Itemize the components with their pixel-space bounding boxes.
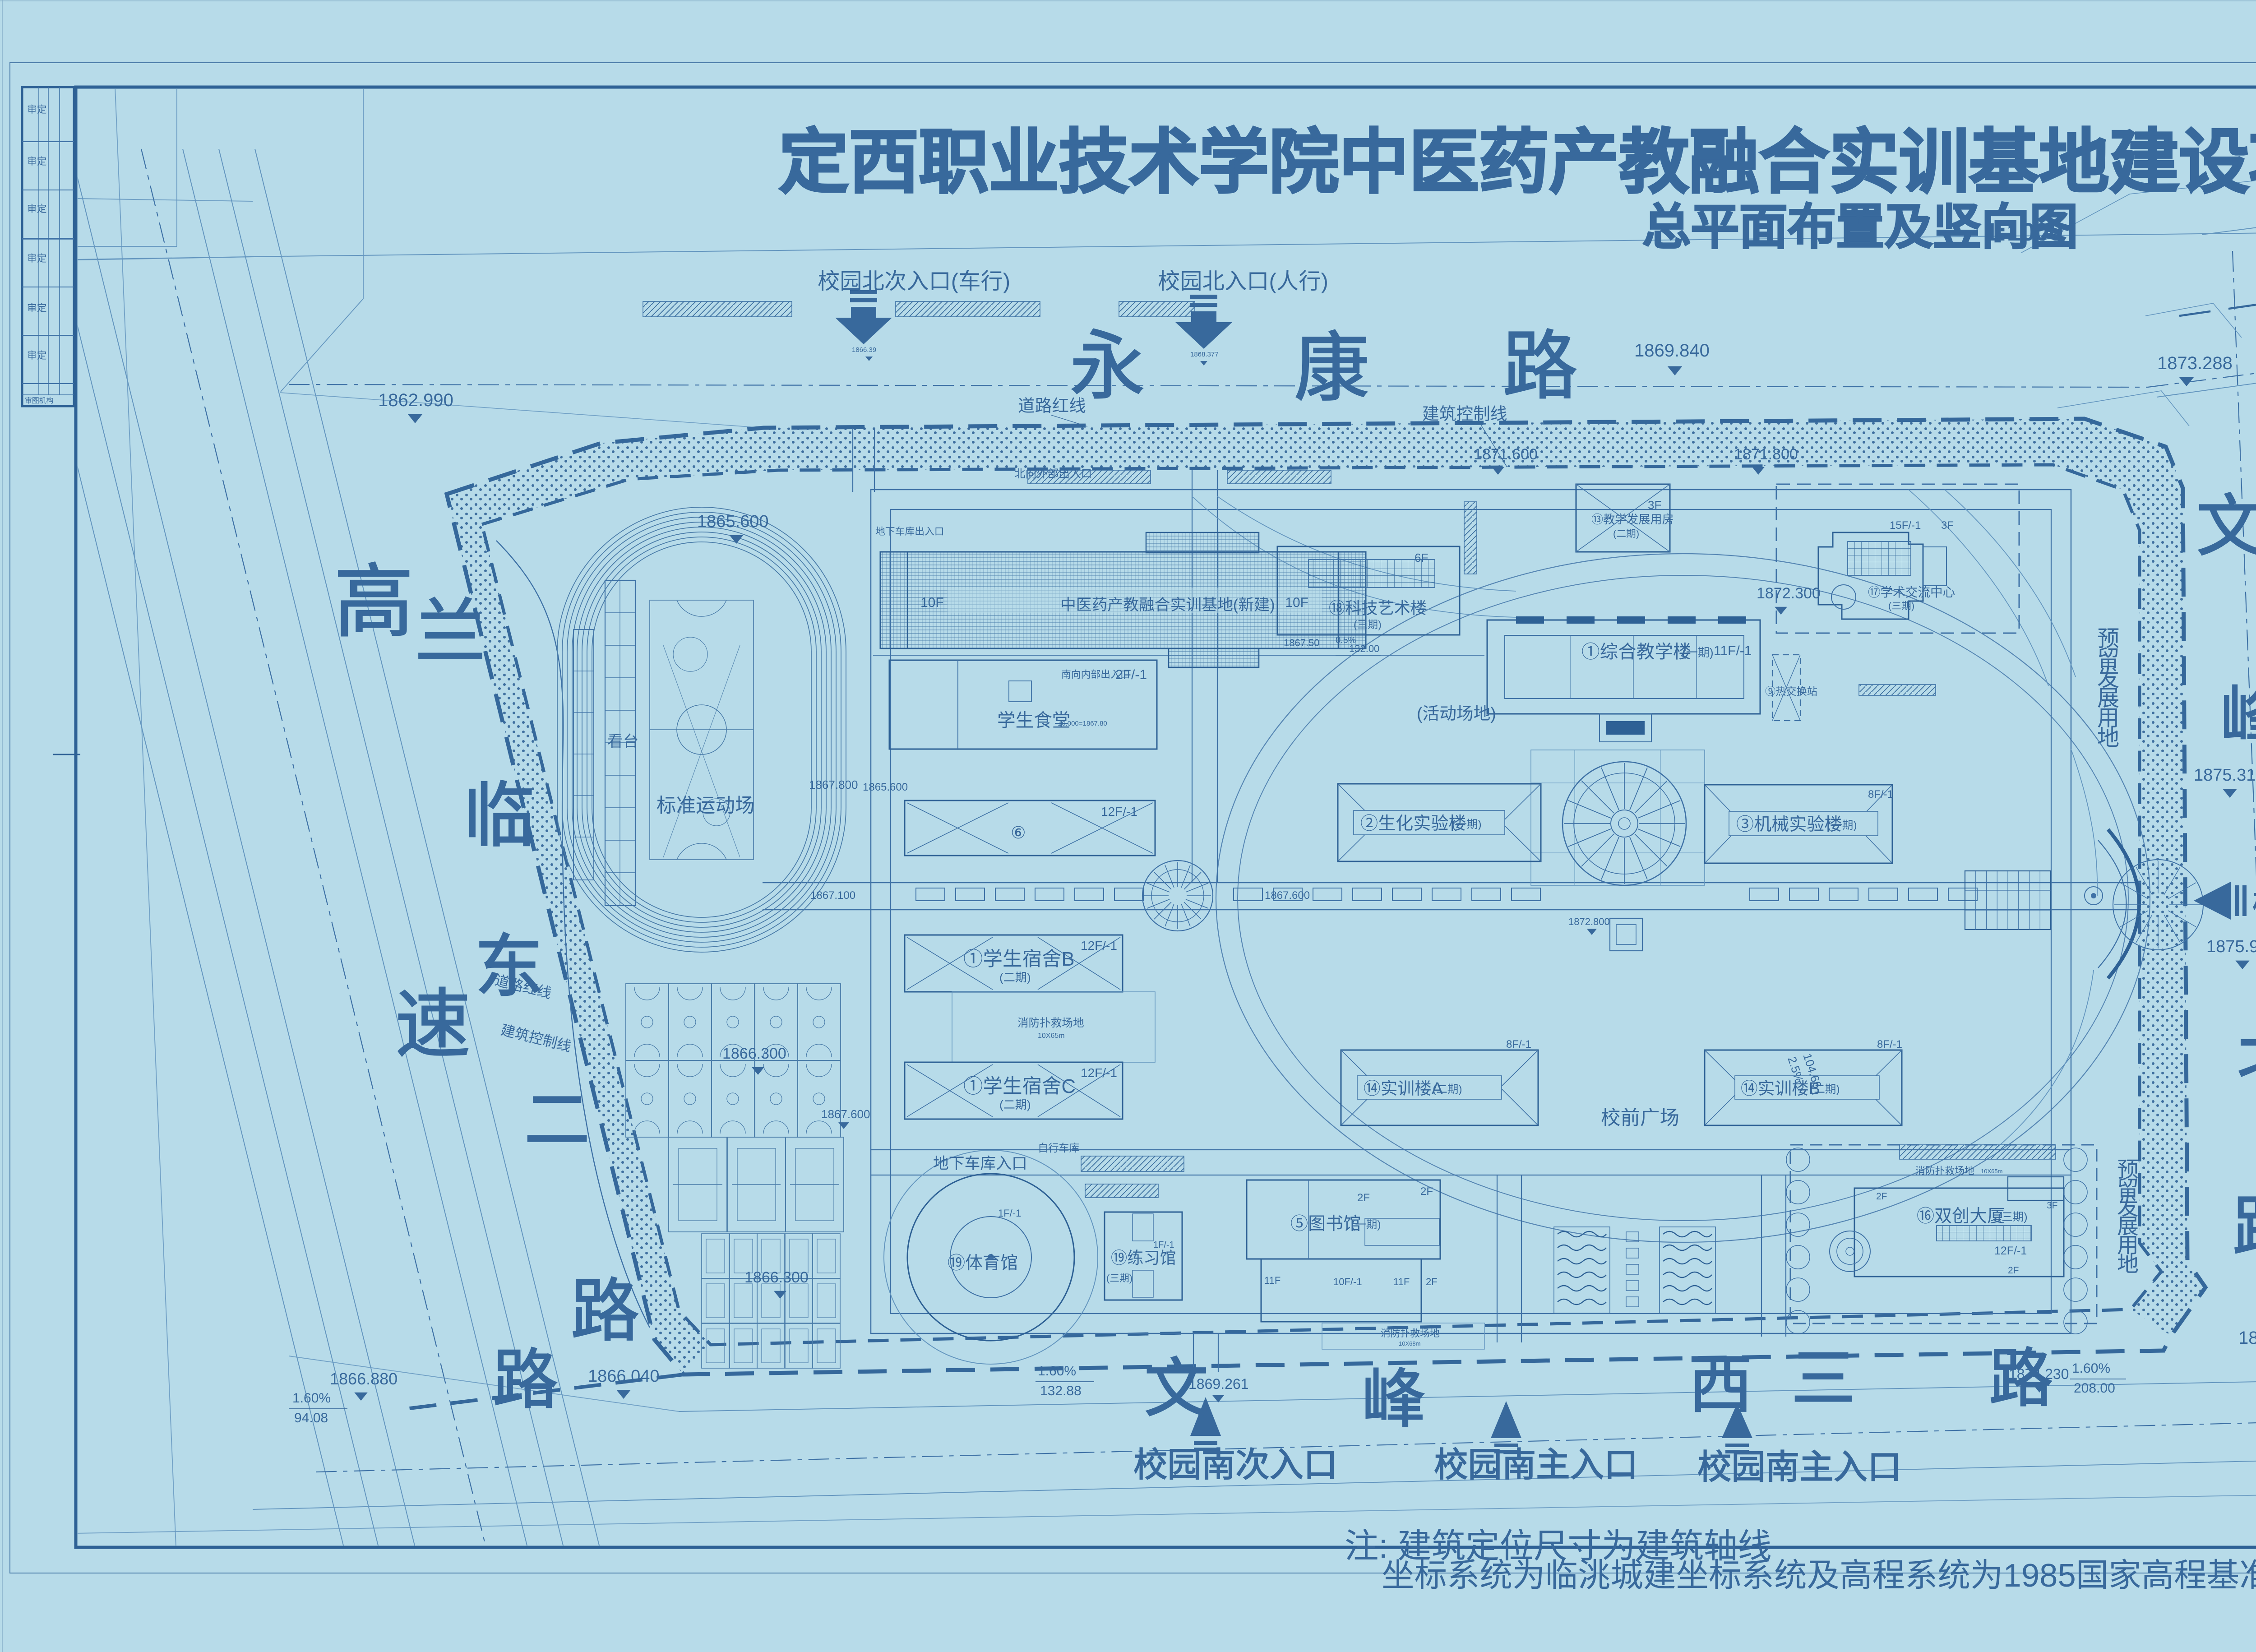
svg-text:兰: 兰 <box>415 593 486 672</box>
svg-text:1865.600: 1865.600 <box>863 781 908 793</box>
svg-text:②生化实验楼: ②生化实验楼 <box>1360 814 1466 833</box>
svg-text:道路红线: 道路红线 <box>1018 396 1086 415</box>
svg-text:速: 速 <box>395 983 471 1067</box>
svg-text:1867.800: 1867.800 <box>809 778 858 791</box>
svg-text:⑲练习馆: ⑲练习馆 <box>1111 1249 1176 1267</box>
svg-text:11F: 11F <box>1264 1275 1281 1286</box>
svg-text:1867.100: 1867.100 <box>810 889 855 902</box>
svg-text:6F: 6F <box>1415 551 1428 565</box>
svg-text:康: 康 <box>1294 326 1369 410</box>
svg-text:文: 文 <box>2196 489 2256 564</box>
svg-text:消防扑救场地: 消防扑救场地 <box>1915 1165 1974 1176</box>
svg-text:(三期): (三期) <box>1998 1211 2028 1223</box>
svg-text:校园北入口(人行): 校园北入口(人行) <box>1158 269 1328 294</box>
svg-text:2F: 2F <box>1426 1276 1438 1287</box>
svg-text:审定: 审定 <box>27 156 47 167</box>
svg-text:⑱科技艺术楼: ⑱科技艺术楼 <box>1329 599 1427 617</box>
svg-text:12F/-1: 12F/-1 <box>1081 939 1117 953</box>
svg-text:1868.377: 1868.377 <box>1190 351 1219 358</box>
svg-text:⑭实训楼A: ⑭实训楼A <box>1364 1079 1443 1098</box>
svg-text:94.08: 94.08 <box>294 1411 328 1425</box>
svg-text:15F/-1: 15F/-1 <box>1890 519 1921 532</box>
svg-text:(二期): (二期) <box>999 1098 1031 1111</box>
svg-text:高: 高 <box>334 558 414 647</box>
svg-text:①学生宿舍C: ①学生宿舍C <box>963 1076 1076 1097</box>
svg-text:⑥: ⑥ <box>1011 823 1026 842</box>
svg-text:校园南次入口: 校园南次入口 <box>1133 1446 1337 1484</box>
svg-text:1874.230: 1874.230 <box>2009 1366 2069 1382</box>
svg-text:1865.600: 1865.600 <box>697 512 769 531</box>
svg-text:(二期): (二期) <box>1613 528 1639 539</box>
svg-text:(三期): (三期) <box>1354 619 1382 630</box>
svg-text:2F: 2F <box>1876 1191 1887 1202</box>
svg-text:地下车库出入口: 地下车库出入口 <box>875 526 944 537</box>
svg-text:自行车库: 自行车库 <box>1038 1142 1080 1154</box>
svg-text:北向外部出入口: 北向外部出入口 <box>1014 467 1092 480</box>
svg-text:审定: 审定 <box>27 350 47 361</box>
svg-text:峰: 峰 <box>2220 680 2256 755</box>
svg-text:西: 西 <box>1688 1349 1752 1421</box>
svg-text:1.60%: 1.60% <box>1038 1364 1076 1379</box>
svg-text:1.60%: 1.60% <box>2072 1361 2110 1376</box>
svg-text:标准运动场: 标准运动场 <box>656 795 755 817</box>
svg-text:12F/-1: 12F/-1 <box>1994 1245 2027 1257</box>
svg-text:8F/-1: 8F/-1 <box>1868 788 1893 801</box>
svg-text:1872.300: 1872.300 <box>1757 585 1821 602</box>
svg-text:1F/-1: 1F/-1 <box>998 1208 1021 1219</box>
svg-text:1869.261: 1869.261 <box>1188 1376 1248 1392</box>
svg-text:校园东入口: 校园东入口 <box>2252 886 2256 919</box>
svg-text:1871.600: 1871.600 <box>1474 446 1538 463</box>
svg-text:峰: 峰 <box>1362 1364 1426 1435</box>
svg-text:①综合教学楼: ①综合教学楼 <box>1581 641 1691 662</box>
svg-text:11F: 11F <box>1393 1276 1410 1287</box>
svg-text:二: 二 <box>524 1083 590 1157</box>
svg-text:⑲体育馆: ⑲体育馆 <box>948 1254 1018 1273</box>
svg-text:地下车库入口: 地下车库入口 <box>933 1155 1027 1172</box>
svg-text:(活动场地): (活动场地) <box>1417 704 1496 723</box>
svg-text:⑬教学发展用房: ⑬教学发展用房 <box>1591 513 1674 526</box>
svg-text:3F: 3F <box>2047 1200 2058 1211</box>
svg-text:±0.000=1867.80: ±0.000=1867.80 <box>1058 720 1107 727</box>
svg-text:(三期): (三期) <box>1106 1273 1133 1284</box>
svg-text:10X65m: 10X65m <box>1981 1168 2002 1175</box>
svg-text:建筑控制线: 建筑控制线 <box>1422 404 1507 423</box>
svg-text:8F/-1: 8F/-1 <box>1877 1038 1902 1050</box>
svg-text:审定: 审定 <box>27 302 47 314</box>
svg-text:132.88: 132.88 <box>1040 1384 1082 1398</box>
svg-text:审定: 审定 <box>27 104 47 115</box>
svg-text:南向内部出入口: 南向内部出入口 <box>1061 669 1130 680</box>
svg-text:⑭实训楼B: ⑭实训楼B <box>1741 1079 1820 1098</box>
svg-text:1866.040: 1866.040 <box>588 1367 660 1386</box>
svg-text:地: 地 <box>2097 726 2119 750</box>
svg-text:校园南主入口: 校园南主入口 <box>1434 1446 1638 1484</box>
svg-text:(三期): (三期) <box>1888 600 1914 611</box>
svg-text:0.5%: 0.5% <box>1336 635 1356 645</box>
svg-text:⑤图书馆: ⑤图书馆 <box>1290 1214 1361 1234</box>
svg-text:1867.600: 1867.600 <box>821 1107 870 1121</box>
svg-text:1873.288: 1873.288 <box>2157 353 2233 373</box>
svg-text:11F/-1: 11F/-1 <box>1714 643 1752 658</box>
svg-text:路: 路 <box>1502 324 1578 408</box>
svg-text:⑯双创大厦: ⑯双创大厦 <box>1917 1207 2005 1226</box>
svg-text:10X68m: 10X68m <box>1399 1340 1420 1347</box>
svg-text:1F/-1: 1F/-1 <box>1153 1240 1174 1250</box>
svg-text:1862.990: 1862.990 <box>378 390 453 410</box>
svg-text:(二期): (二期) <box>999 971 1031 984</box>
svg-text:1866.300: 1866.300 <box>744 1269 809 1286</box>
svg-text:(二期): (二期) <box>1433 1083 1462 1096</box>
svg-text:10X65m: 10X65m <box>1038 1032 1065 1040</box>
svg-text:1871.800: 1871.800 <box>1734 446 1798 463</box>
svg-text:校前广场: 校前广场 <box>1601 1107 1679 1129</box>
svg-text:1866.880: 1866.880 <box>330 1370 398 1388</box>
svg-text:1876.495: 1876.495 <box>2238 1328 2256 1348</box>
svg-text:(一期): (一期) <box>1827 819 1857 832</box>
svg-text:临: 临 <box>464 777 535 856</box>
svg-text:1:1000: 1:1000 <box>1984 217 2063 246</box>
svg-text:定西职业技术学院中医药产教融合实训基地建设项目: 定西职业技术学院中医药产教融合实训基地建设项目 <box>779 123 2256 201</box>
svg-text:审定: 审定 <box>27 253 47 264</box>
svg-text:中医药产教融合实训基地(新建): 中医药产教融合实训基地(新建) <box>1060 596 1275 614</box>
svg-text:(一期): (一期) <box>1452 819 1482 831</box>
svg-text:1866.39: 1866.39 <box>852 346 876 354</box>
svg-text:校园南主入口: 校园南主入口 <box>1697 1448 1901 1486</box>
svg-text:1872.800: 1872.800 <box>1568 916 1610 927</box>
svg-text:路: 路 <box>2233 1190 2256 1265</box>
svg-text:地: 地 <box>2117 1253 2139 1277</box>
svg-text:⑨热交换站: ⑨热交换站 <box>1765 685 1817 697</box>
svg-text:消防扑救场地: 消防扑救场地 <box>1017 1017 1084 1029</box>
svg-text:路: 路 <box>571 1273 639 1350</box>
svg-text:(一期): (一期) <box>1351 1219 1381 1231</box>
svg-text:1869.840: 1869.840 <box>1634 341 1710 361</box>
svg-text:北: 北 <box>2237 1018 2256 1094</box>
svg-text:3F: 3F <box>1648 498 1661 512</box>
svg-text:校园北次入口(车行): 校园北次入口(车行) <box>818 269 1010 294</box>
svg-text:1866.300: 1866.300 <box>722 1045 786 1062</box>
svg-text:坐标系统为临洮城建坐标系统及高程系统为1985国家高程基准: 坐标系统为临洮城建坐标系统及高程系统为1985国家高程基准 <box>1382 1557 2256 1594</box>
svg-text:10F: 10F <box>920 595 944 610</box>
svg-text:消防扑救场地: 消防扑救场地 <box>1381 1328 1440 1339</box>
svg-text:2F: 2F <box>1357 1192 1370 1204</box>
svg-text:8F/-1: 8F/-1 <box>1506 1038 1531 1050</box>
svg-text:12F/-1: 12F/-1 <box>1081 1066 1117 1080</box>
svg-text:2F: 2F <box>2008 1265 2019 1276</box>
svg-text:2F: 2F <box>1420 1185 1433 1198</box>
svg-text:208.00: 208.00 <box>2074 1381 2115 1396</box>
svg-text:1875.903: 1875.903 <box>2206 937 2256 956</box>
svg-text:路: 路 <box>493 1343 558 1416</box>
svg-text:10F/-1: 10F/-1 <box>1333 1276 1362 1287</box>
svg-text:⑰学术交流中心: ⑰学术交流中心 <box>1868 585 1955 599</box>
svg-text:12F/-1: 12F/-1 <box>1101 805 1137 819</box>
svg-text:(一期): (一期) <box>1682 646 1714 659</box>
svg-text:1875.314: 1875.314 <box>2194 766 2256 785</box>
svg-text:三: 三 <box>1791 1343 1855 1415</box>
svg-text:10F: 10F <box>1285 595 1308 610</box>
svg-text:审图机构: 审图机构 <box>25 397 54 405</box>
svg-text:1867.600: 1867.600 <box>1265 889 1310 902</box>
svg-text:1.60%: 1.60% <box>292 1391 331 1406</box>
svg-text:看台: 看台 <box>607 733 639 750</box>
svg-text:1867.50: 1867.50 <box>1284 637 1320 648</box>
svg-text:①学生宿舍B: ①学生宿舍B <box>963 949 1075 970</box>
svg-text:③机械实验楼: ③机械实验楼 <box>1736 815 1842 834</box>
svg-text:3F: 3F <box>1941 519 1954 532</box>
svg-text:审定: 审定 <box>27 203 47 214</box>
